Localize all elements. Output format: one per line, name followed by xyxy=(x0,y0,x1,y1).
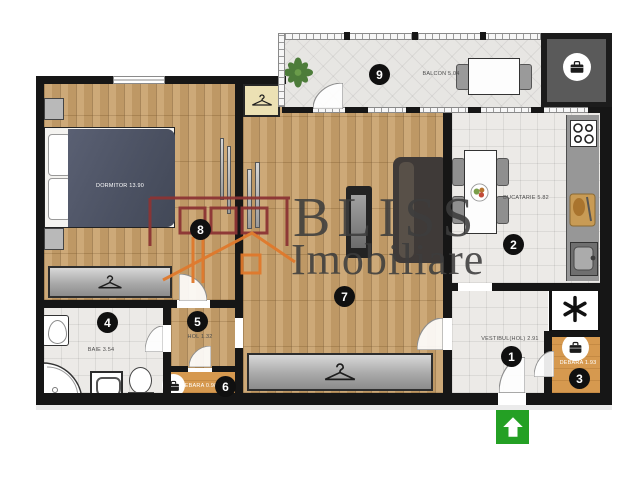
entrance-marker xyxy=(496,410,529,444)
wall xyxy=(443,350,452,405)
room-number-badge: 6 xyxy=(215,376,236,397)
room-number-badge: 5 xyxy=(187,311,208,332)
kitchen-counter xyxy=(566,115,599,281)
briefcase-icon xyxy=(568,341,583,354)
wall xyxy=(468,107,481,113)
balcony-table xyxy=(468,58,520,95)
hanger-icon xyxy=(251,94,273,107)
bathroom-label: BAIE 3.54 xyxy=(88,347,115,353)
toilet-bowl xyxy=(129,367,152,394)
balcony-door xyxy=(313,83,343,109)
asterisk-icon xyxy=(561,295,589,323)
briefcase-icon xyxy=(569,60,585,74)
storage-door xyxy=(534,351,554,377)
utility-box xyxy=(549,285,601,333)
nightstand xyxy=(44,228,64,250)
plant-icon xyxy=(283,57,313,88)
house-logo-watermark xyxy=(145,188,297,288)
wall xyxy=(531,107,544,113)
storage-marker xyxy=(562,334,589,361)
wall xyxy=(163,308,171,325)
floor-plan: BLISS Imobiliare 1 2 3 4 5 6 7 8 9 VESTI… xyxy=(0,0,640,480)
bathroom-door xyxy=(145,326,163,352)
window-mullion xyxy=(344,32,350,40)
wall xyxy=(544,331,604,337)
wall xyxy=(171,366,188,372)
room-number-badge: 1 xyxy=(501,346,522,367)
hanger-icon xyxy=(323,363,357,382)
wall xyxy=(406,107,420,113)
wall xyxy=(36,76,44,405)
bathroom-sink xyxy=(42,315,69,346)
hall-label: HOL 1.32 xyxy=(188,334,213,340)
wall xyxy=(36,393,498,405)
window-mullion xyxy=(480,32,486,40)
cutting-board-icon xyxy=(569,193,596,227)
kitchen-label: BUCATARIE 5.82 xyxy=(503,195,549,201)
bedroom-window xyxy=(113,76,165,84)
entry-closet xyxy=(243,84,280,117)
arrow-up-icon xyxy=(501,415,525,439)
wall xyxy=(282,107,313,113)
wall xyxy=(212,366,235,372)
small-storage-label: DEBARA 0.98 xyxy=(181,383,218,389)
wall xyxy=(210,300,243,308)
balcony-label: BALCON 5.04 xyxy=(422,71,459,77)
wall xyxy=(345,107,368,113)
room-number-badge: 9 xyxy=(369,64,390,85)
wall xyxy=(492,283,612,291)
chair xyxy=(518,64,532,90)
stove-icon xyxy=(570,120,597,147)
chair xyxy=(496,158,509,186)
room-number-badge: 8 xyxy=(190,219,211,240)
wall xyxy=(36,300,177,308)
living-wardrobe xyxy=(247,353,433,391)
room-number-badge: 3 xyxy=(569,368,590,389)
window-mullion xyxy=(412,32,418,40)
balcony-window xyxy=(278,33,285,107)
wall xyxy=(600,107,612,405)
nightstand xyxy=(44,98,64,120)
wall xyxy=(443,283,458,291)
storage-label: DEBARA 1.93 xyxy=(560,360,597,366)
sink-icon xyxy=(570,242,598,276)
brand-watermark-bottom: Imobiliare xyxy=(291,238,484,282)
room-number-badge: 7 xyxy=(334,286,355,307)
room-number-badge: 2 xyxy=(503,234,524,255)
balcony-table-set xyxy=(456,58,531,94)
wall xyxy=(235,348,243,398)
bedroom-label: DORMITOR 13.90 xyxy=(96,183,144,189)
wall xyxy=(588,107,600,113)
vestibule-label: VESTIBUL(HOL) 2.91 xyxy=(481,336,538,342)
sink-basin xyxy=(48,320,67,344)
storage-marker xyxy=(563,53,591,81)
balcony-storage xyxy=(541,33,612,108)
closet-door xyxy=(189,346,211,367)
vestibule-door xyxy=(417,318,443,350)
hanger-icon xyxy=(97,275,123,290)
room-number-badge: 4 xyxy=(97,312,118,333)
